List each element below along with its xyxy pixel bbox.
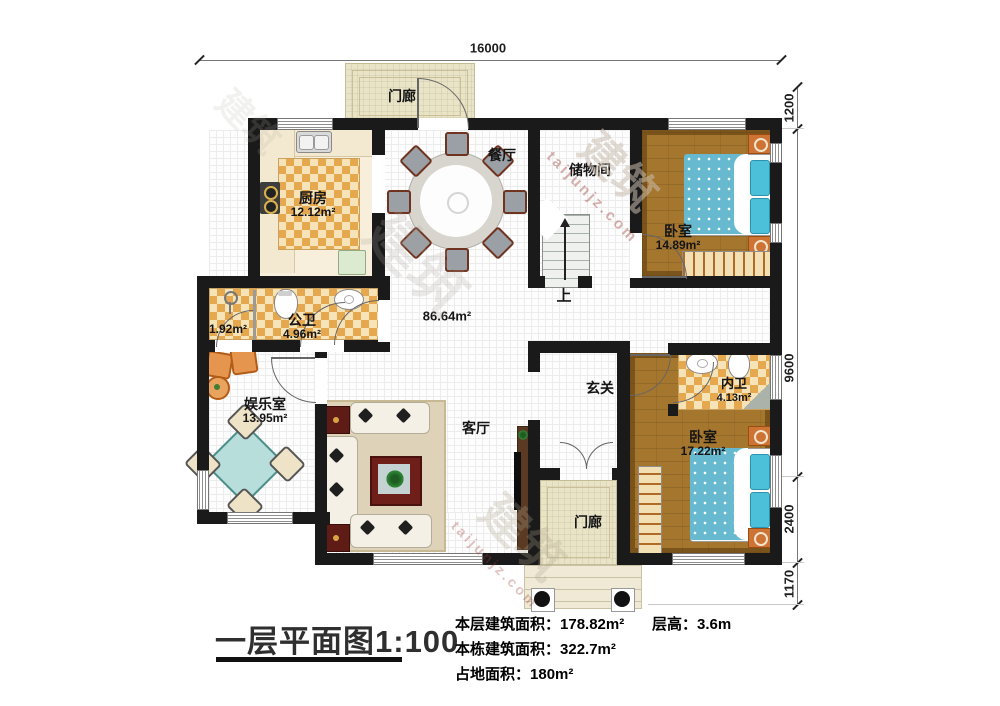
pillow-icon xyxy=(750,160,770,196)
wardrobe xyxy=(638,466,662,556)
wall xyxy=(528,420,540,565)
extension-line xyxy=(648,604,804,605)
chair-icon xyxy=(503,190,527,214)
room-label-living: 客厅 xyxy=(462,420,490,436)
page-title: 一层平面图1:100 xyxy=(215,616,459,661)
bath-partition xyxy=(253,290,256,340)
porch-column xyxy=(614,591,630,607)
window xyxy=(277,118,333,130)
stairs-up-arrow xyxy=(564,226,566,280)
wall xyxy=(617,341,630,565)
coffee-table xyxy=(370,456,422,506)
room-label-storage: 储物间 xyxy=(569,162,611,178)
pillow-icon xyxy=(750,454,770,490)
stove-icon xyxy=(260,182,280,214)
door-opening xyxy=(630,233,642,278)
wall xyxy=(197,276,390,288)
door-leaf xyxy=(630,354,670,356)
chair-icon xyxy=(387,190,411,214)
window xyxy=(770,355,782,400)
extension-line xyxy=(782,562,804,563)
window xyxy=(227,512,293,524)
stat-footprint-area: 占地面积：180m² xyxy=(455,663,573,684)
window xyxy=(770,455,782,508)
area-label-shower: 1.92m² xyxy=(209,323,247,337)
window xyxy=(373,553,483,565)
room-label-porch-top: 门廊 xyxy=(388,88,416,104)
dimension-label-right: 1200 xyxy=(782,94,797,123)
stairs-up-label: 上 xyxy=(556,287,571,304)
room-label-kitchen: 厨房12.12m² xyxy=(291,190,336,220)
stat-building-area: 本栋建筑面积：322.7m² xyxy=(455,638,616,659)
wall xyxy=(668,404,678,416)
shower-head-icon xyxy=(224,291,238,305)
pillow-icon xyxy=(750,492,770,528)
extension-line xyxy=(782,476,804,477)
room-label-dining: 餐厅 xyxy=(488,147,516,163)
door-opening xyxy=(378,300,390,342)
room-label-bedroom-top: 卧室14.89m² xyxy=(656,223,701,253)
door-leaf xyxy=(271,357,315,359)
porch-column xyxy=(534,591,550,607)
title-underline xyxy=(216,657,402,662)
door-opening xyxy=(372,155,385,213)
window xyxy=(770,143,782,163)
door-leaf xyxy=(642,276,686,278)
room-label-public-bath: 公卫4.96m² xyxy=(283,312,321,342)
room-label-entertainment: 娱乐室13.95m² xyxy=(243,396,288,426)
door-opening xyxy=(315,358,327,404)
floor-plan-canvas: 门廊 厨房12.12m² 餐厅 储物间 卧室14.89m² 公卫4.96m² 1… xyxy=(0,0,1000,706)
dimension-label-top: 16000 xyxy=(470,41,506,56)
wall xyxy=(528,118,540,288)
window xyxy=(672,553,745,565)
dimension-label-right: 1170 xyxy=(782,570,797,598)
stat-floor-height: 层高：3.6m xyxy=(652,613,731,634)
dimension-label-right: 9600 xyxy=(782,354,797,383)
wall xyxy=(528,341,617,353)
door-leaf xyxy=(417,78,419,128)
area-label-hall: 86.64m² xyxy=(423,310,471,325)
pillow-icon xyxy=(750,198,770,234)
fridge-icon xyxy=(338,250,366,275)
room-label-porch-bottom: 门廊 xyxy=(574,514,602,530)
wall xyxy=(248,118,260,288)
wall xyxy=(668,343,782,355)
bed-sheet xyxy=(734,448,748,540)
window xyxy=(197,470,209,510)
shower-hose xyxy=(229,302,231,314)
tv-icon xyxy=(514,452,521,510)
side-table-icon xyxy=(206,376,230,400)
plant-icon xyxy=(385,469,405,489)
window xyxy=(668,118,746,130)
room-label-master-bath: 内卫4.13m² xyxy=(717,377,752,405)
stat-floor-area: 本层建筑面积：178.82m² xyxy=(455,613,624,634)
wall xyxy=(528,341,540,372)
dimension-line-top xyxy=(200,60,782,61)
wall xyxy=(578,276,592,288)
chair-icon xyxy=(445,248,469,272)
room-label-foyer: 玄关 xyxy=(586,380,614,396)
room-label-bedroom-bottom: 卧室17.22m² xyxy=(681,429,726,459)
chair-icon xyxy=(445,132,469,156)
toilet-icon xyxy=(728,351,750,379)
dimension-label-right: 2400 xyxy=(782,505,797,534)
stairs-arrowhead-icon xyxy=(560,218,570,227)
dimension-line-right xyxy=(797,87,798,605)
plant-icon xyxy=(518,430,528,440)
extension-line xyxy=(782,128,804,129)
kitchen-sink xyxy=(296,131,332,153)
window xyxy=(770,223,782,243)
closet xyxy=(682,251,772,278)
bed-sheet xyxy=(734,154,748,234)
